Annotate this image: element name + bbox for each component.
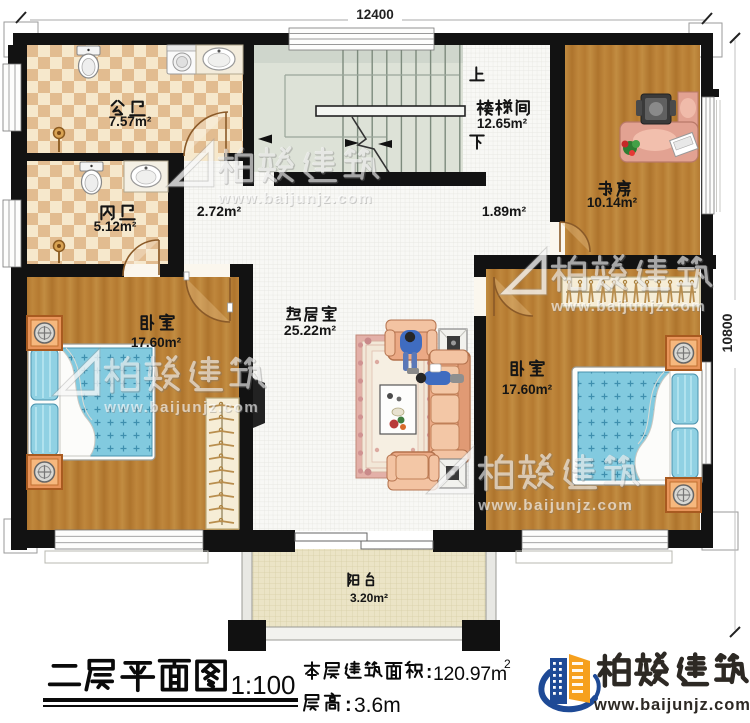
svg-text:7.57m²: 7.57m² bbox=[109, 114, 152, 129]
svg-text:www.baijunjz.com: www.baijunjz.com bbox=[217, 190, 373, 207]
svg-text:www.baijunjz.com: www.baijunjz.com bbox=[593, 696, 750, 714]
svg-text:17.60m²: 17.60m² bbox=[131, 335, 182, 350]
svg-text:3.20m²: 3.20m² bbox=[350, 591, 388, 605]
svg-text:3.6m: 3.6m bbox=[354, 694, 401, 717]
svg-text:www.baijunjz.com: www.baijunjz.com bbox=[477, 497, 633, 514]
svg-text:25.22m²: 25.22m² bbox=[284, 322, 336, 338]
svg-text::: : bbox=[426, 662, 432, 683]
svg-text:12.65m²: 12.65m² bbox=[477, 116, 528, 131]
svg-text::: : bbox=[345, 694, 352, 716]
svg-text:10800: 10800 bbox=[719, 313, 735, 352]
svg-text:1:100: 1:100 bbox=[230, 670, 295, 700]
svg-text:5.12m²: 5.12m² bbox=[94, 219, 137, 234]
svg-text:120.97m: 120.97m bbox=[433, 663, 507, 685]
svg-text:17.60m²: 17.60m² bbox=[502, 382, 553, 397]
svg-text:2: 2 bbox=[504, 657, 511, 671]
svg-text:www.baijunjz.com: www.baijunjz.com bbox=[103, 399, 259, 416]
svg-text:www.baijunjz.com: www.baijunjz.com bbox=[550, 298, 706, 315]
svg-text:12400: 12400 bbox=[356, 7, 394, 22]
svg-text:1.89m²: 1.89m² bbox=[482, 203, 527, 219]
svg-text:10.14m²: 10.14m² bbox=[587, 195, 638, 210]
